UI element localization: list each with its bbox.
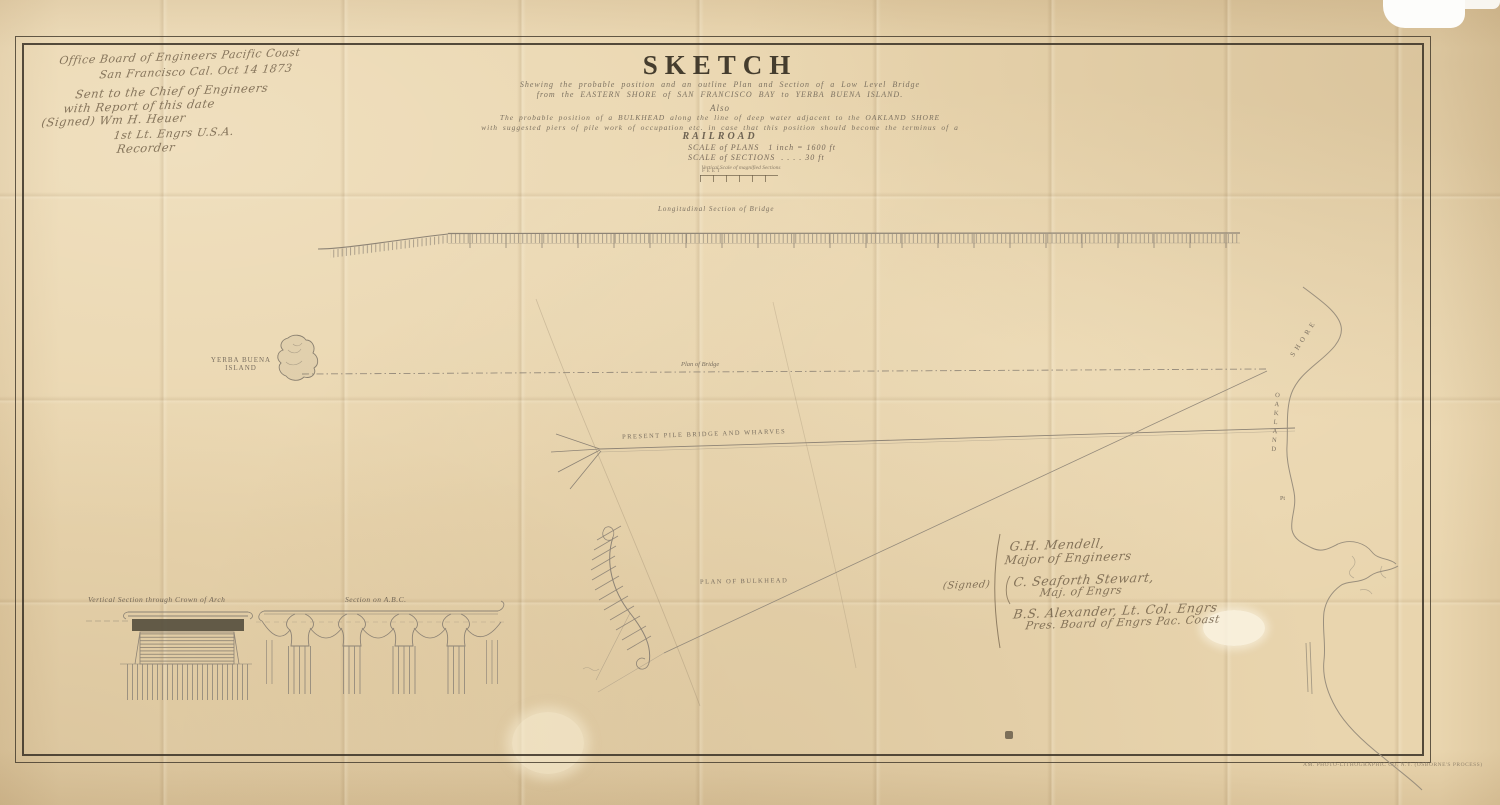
bridge-plan-line — [302, 369, 1266, 374]
arch-crown-section-drawing — [86, 612, 252, 700]
island-outline — [278, 335, 318, 380]
abc-section-drawing — [256, 601, 506, 694]
pencil-route-lines — [536, 299, 856, 706]
scanned-map-sheet: Office Board of Engineers Pacific Coast … — [0, 0, 1500, 805]
bulkhead-alignment-line — [598, 371, 1267, 692]
oakland-shoreline — [1287, 287, 1422, 790]
drawing-overlay — [0, 0, 1500, 805]
bulkhead-plan-drawing — [583, 526, 651, 680]
bridge-longitudinal-section-drawing — [318, 233, 1240, 258]
pile-bridge-line — [551, 428, 1295, 489]
signature-brace — [995, 534, 1010, 648]
